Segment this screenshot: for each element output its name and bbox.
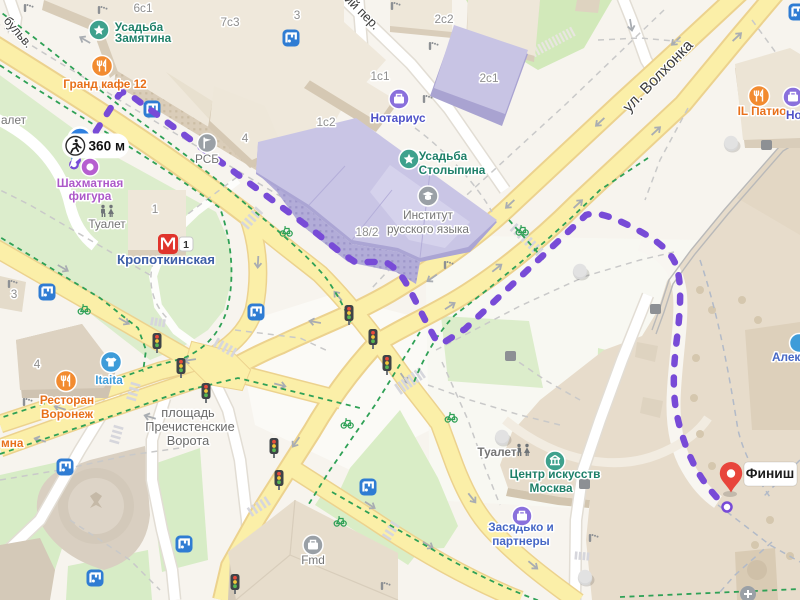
- svg-text:Туалет: Туалет: [477, 445, 516, 459]
- svg-text:Ресторан: Ресторан: [40, 393, 94, 407]
- svg-text:Гранд кафе 12: Гранд кафе 12: [63, 77, 147, 91]
- svg-text:Кропоткинская: Кропоткинская: [117, 252, 215, 267]
- svg-text:Нотариус: Нотариус: [370, 111, 425, 125]
- svg-text:Институт: Институт: [403, 208, 453, 222]
- svg-text:Ворота: Ворота: [167, 433, 210, 448]
- svg-text:Финиш: Финиш: [746, 466, 795, 481]
- svg-text:фигура: фигура: [69, 189, 112, 203]
- svg-text:мна: мна: [1, 436, 24, 450]
- svg-text:Нота: Нота: [786, 108, 800, 122]
- svg-text:Воронеж: Воронеж: [41, 407, 94, 421]
- svg-text:2с2: 2с2: [434, 12, 453, 26]
- svg-text:7с3: 7с3: [220, 15, 239, 29]
- svg-text:Шахматная: Шахматная: [57, 176, 124, 190]
- svg-text:6с1: 6с1: [133, 1, 152, 15]
- svg-text:Пречистенские: Пречистенские: [145, 419, 234, 434]
- svg-text:алет: алет: [1, 113, 27, 127]
- svg-text:РСБ: РСБ: [195, 152, 219, 166]
- svg-text:Туалет: Туалет: [88, 217, 126, 231]
- svg-text:Москва: Москва: [530, 481, 573, 495]
- svg-text:2с1: 2с1: [479, 71, 498, 85]
- svg-text:Усадьба: Усадьба: [419, 149, 468, 163]
- svg-text:Замятина: Замятина: [115, 31, 172, 45]
- svg-text:4: 4: [34, 357, 41, 371]
- svg-text:партнеры: партнеры: [492, 534, 549, 548]
- svg-text:Itaita: Itaita: [95, 373, 123, 387]
- svg-text:3: 3: [294, 8, 301, 22]
- svg-text:3: 3: [11, 287, 18, 301]
- svg-text:1с2: 1с2: [316, 115, 335, 129]
- svg-text:площадь: площадь: [161, 405, 215, 420]
- svg-text:1с1: 1с1: [370, 69, 389, 83]
- svg-text:Столыпина: Столыпина: [419, 163, 486, 177]
- svg-text:18/2: 18/2: [356, 225, 379, 239]
- svg-text:360 м: 360 м: [89, 139, 126, 154]
- svg-text:русского языка: русского языка: [387, 222, 469, 236]
- svg-text:1: 1: [152, 202, 159, 216]
- svg-text:4: 4: [242, 131, 249, 145]
- svg-text:1: 1: [183, 239, 189, 251]
